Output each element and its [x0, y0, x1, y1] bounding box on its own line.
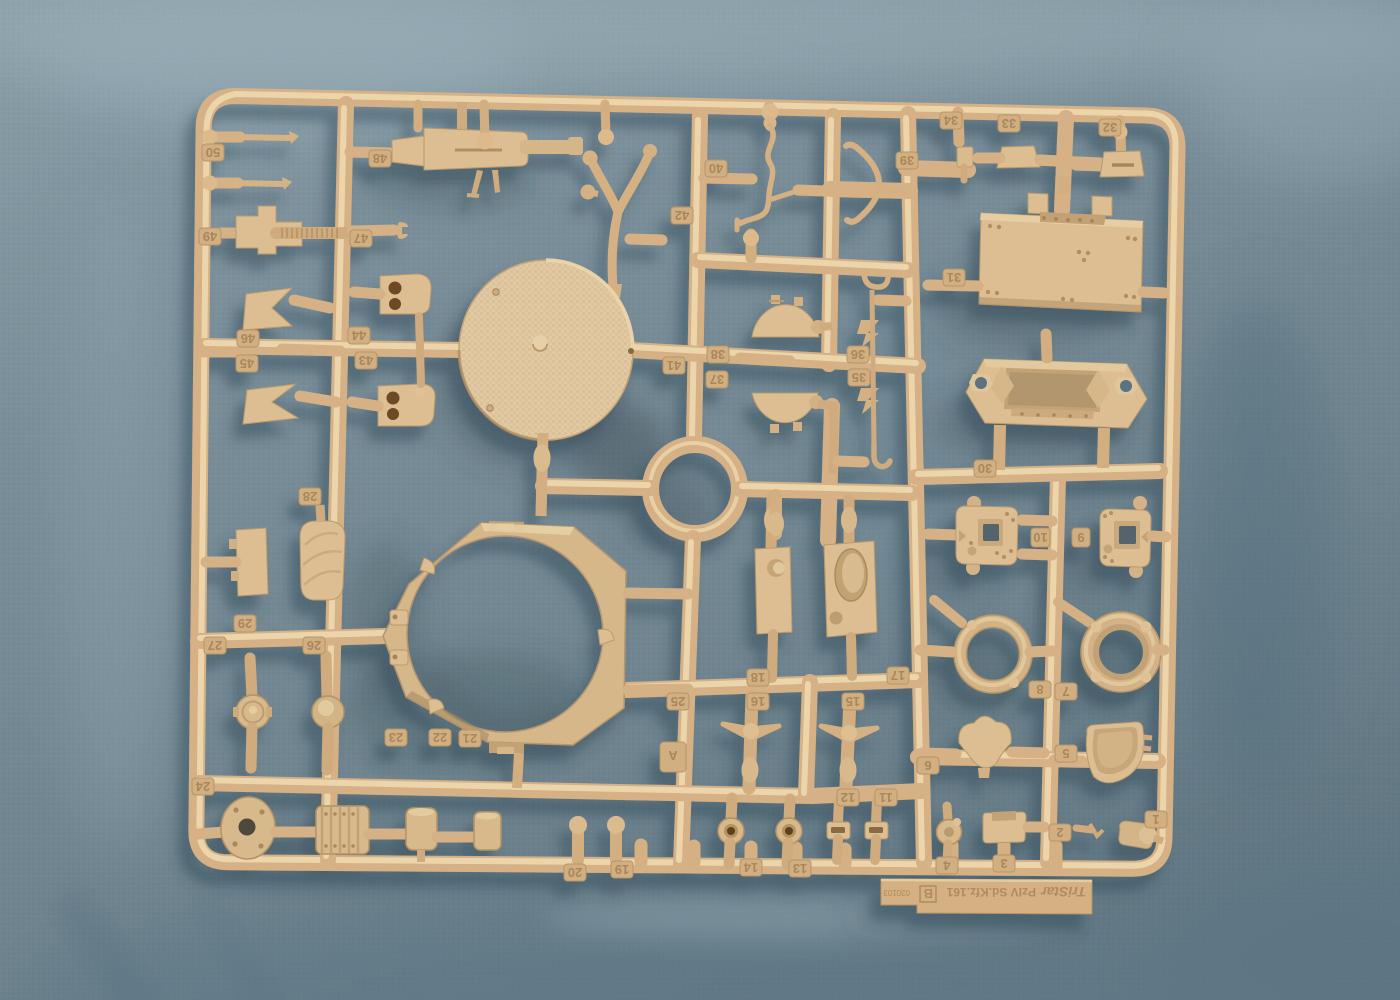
- svg-text:16: 16: [751, 694, 765, 709]
- svg-text:030103: 030103: [883, 888, 910, 897]
- svg-text:18: 18: [751, 670, 765, 685]
- svg-text:44: 44: [351, 328, 366, 343]
- svg-text:15: 15: [846, 694, 860, 709]
- svg-text:6: 6: [924, 758, 931, 773]
- svg-text:32: 32: [1103, 120, 1117, 135]
- svg-text:12: 12: [841, 790, 855, 805]
- svg-text:4: 4: [943, 858, 951, 873]
- svg-text:17: 17: [891, 668, 905, 683]
- svg-text:10: 10: [1033, 530, 1047, 545]
- svg-text:36: 36: [851, 347, 865, 362]
- svg-text:49: 49: [203, 229, 217, 244]
- svg-text:50: 50: [206, 145, 220, 160]
- svg-text:2: 2: [1056, 825, 1063, 840]
- svg-text:1: 1: [1152, 812, 1159, 827]
- svg-text:43: 43: [359, 353, 373, 368]
- svg-text:40: 40: [709, 161, 723, 176]
- svg-text:5: 5: [1062, 746, 1069, 761]
- svg-text:21: 21: [463, 731, 477, 746]
- svg-text:22: 22: [433, 730, 447, 745]
- svg-text:31: 31: [947, 270, 961, 285]
- svg-text:28: 28: [303, 489, 317, 504]
- svg-text:38: 38: [711, 347, 725, 362]
- svg-text:26: 26: [307, 638, 321, 653]
- svg-text:34: 34: [943, 113, 958, 128]
- svg-text:20: 20: [568, 865, 582, 880]
- svg-text:14: 14: [743, 860, 758, 875]
- svg-text:33: 33: [1002, 116, 1016, 131]
- svg-text:37: 37: [710, 372, 724, 387]
- svg-text:11: 11: [879, 790, 893, 805]
- svg-text:45: 45: [240, 356, 254, 371]
- svg-text:A: A: [668, 748, 678, 763]
- svg-text:7: 7: [1062, 684, 1069, 699]
- svg-text:47: 47: [354, 231, 368, 246]
- svg-text:TriStar: TriStar: [1040, 884, 1086, 900]
- svg-text:35: 35: [852, 370, 866, 385]
- svg-text:24: 24: [195, 779, 210, 794]
- svg-text:B: B: [924, 886, 933, 901]
- svg-text:9: 9: [1077, 530, 1084, 545]
- svg-text:PzIV Sd.Kfz.161: PzIV Sd.Kfz.161: [946, 885, 1036, 899]
- svg-text:48: 48: [373, 151, 387, 166]
- svg-text:19: 19: [615, 862, 629, 877]
- svg-text:27: 27: [208, 638, 222, 653]
- svg-text:46: 46: [241, 331, 255, 346]
- svg-text:3: 3: [1000, 856, 1007, 871]
- svg-text:30: 30: [978, 461, 992, 476]
- svg-text:8: 8: [1036, 682, 1043, 697]
- svg-text:23: 23: [389, 730, 403, 745]
- svg-text:41: 41: [667, 358, 681, 373]
- svg-text:42: 42: [675, 208, 689, 223]
- svg-text:29: 29: [238, 616, 252, 631]
- svg-text:39: 39: [900, 153, 914, 168]
- svg-text:25: 25: [671, 694, 685, 709]
- svg-text:13: 13: [793, 861, 807, 876]
